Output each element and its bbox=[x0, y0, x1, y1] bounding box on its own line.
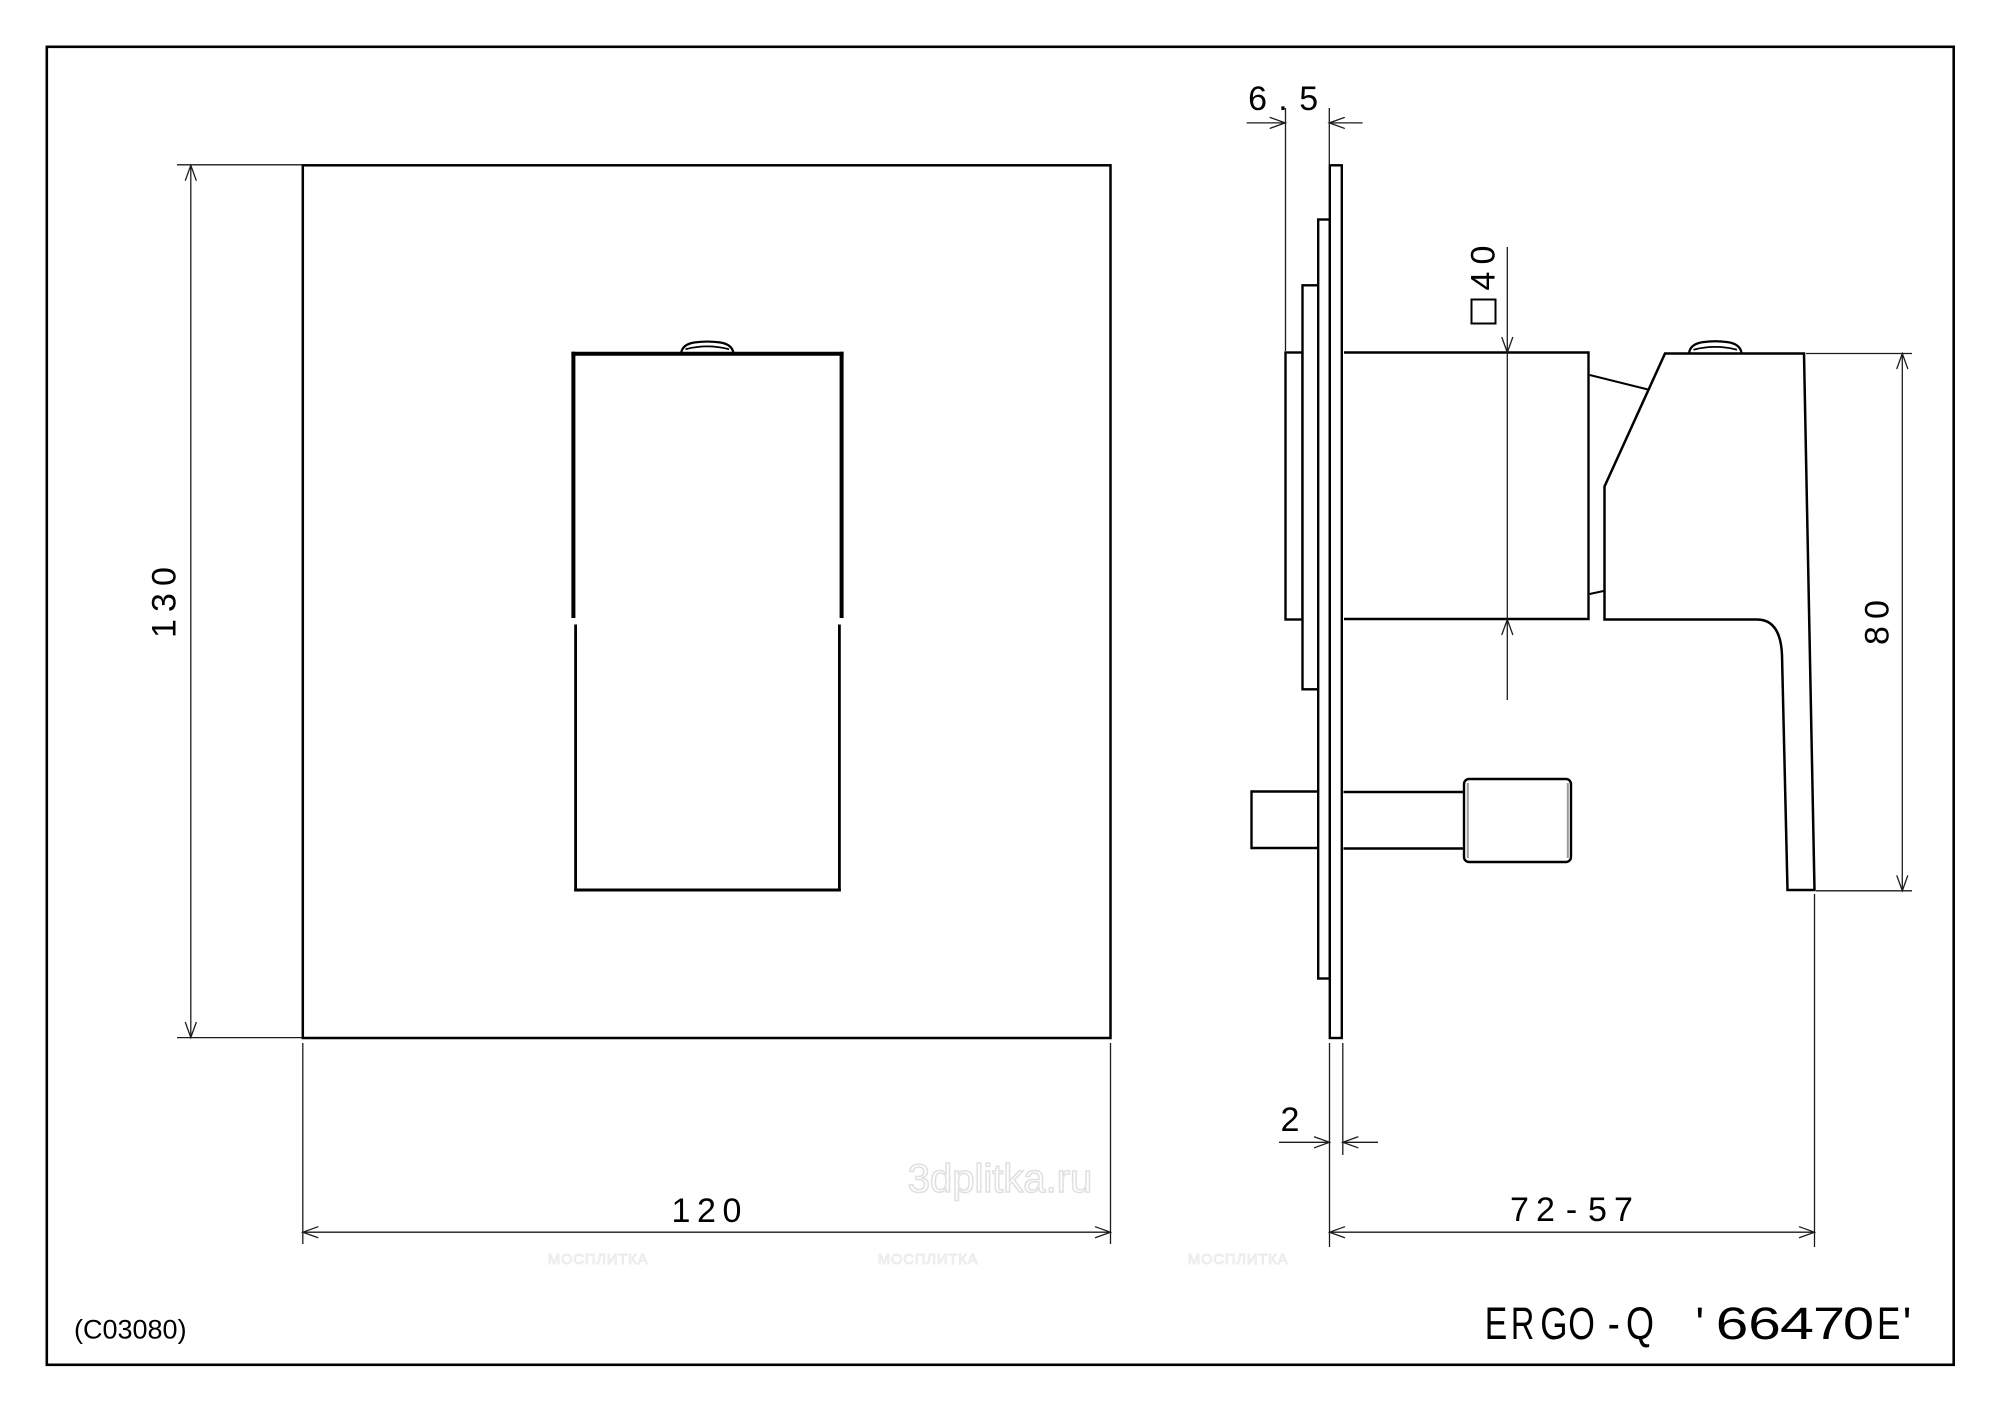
svg-text:6: 6 bbox=[1248, 80, 1267, 118]
svg-text:': ' bbox=[1903, 1298, 1912, 1349]
svg-text:E: E bbox=[1877, 1298, 1900, 1349]
svg-text:8: 8 bbox=[1859, 626, 1897, 645]
svg-text:6: 6 bbox=[1716, 1299, 1749, 1349]
svg-text:0: 0 bbox=[146, 567, 184, 586]
svg-text:0: 0 bbox=[1859, 600, 1897, 619]
svg-text:7: 7 bbox=[1510, 1191, 1529, 1229]
svg-text:': ' bbox=[1696, 1298, 1705, 1349]
svg-text:МОСПЛИТКА: МОСПЛИТКА bbox=[878, 1251, 979, 1268]
svg-text:3: 3 bbox=[146, 593, 184, 612]
svg-text:.: . bbox=[1278, 80, 1287, 118]
svg-text:O: O bbox=[1568, 1300, 1595, 1350]
svg-text:3dplitka.ru: 3dplitka.ru bbox=[908, 1157, 1093, 1201]
svg-text:5: 5 bbox=[1588, 1191, 1607, 1229]
svg-text:1: 1 bbox=[146, 619, 184, 638]
svg-text:0: 0 bbox=[723, 1192, 742, 1230]
svg-text:-: - bbox=[1608, 1298, 1620, 1349]
svg-text:G: G bbox=[1540, 1298, 1567, 1349]
svg-text:7: 7 bbox=[1813, 1298, 1845, 1348]
svg-text:R: R bbox=[1511, 1300, 1534, 1349]
svg-text:МОСПЛИТКА: МОСПЛИТКА bbox=[1188, 1251, 1289, 1268]
svg-text:2: 2 bbox=[1536, 1191, 1555, 1229]
svg-text:1: 1 bbox=[672, 1192, 691, 1230]
svg-text:МОСПЛИТКА: МОСПЛИТКА bbox=[548, 1251, 649, 1268]
svg-text:0: 0 bbox=[1843, 1298, 1874, 1349]
svg-text:5: 5 bbox=[1299, 80, 1318, 118]
svg-text:2: 2 bbox=[697, 1192, 716, 1230]
svg-text:4: 4 bbox=[1465, 272, 1503, 291]
svg-text:Q: Q bbox=[1626, 1298, 1654, 1349]
svg-text:7: 7 bbox=[1614, 1191, 1633, 1229]
svg-text:6: 6 bbox=[1748, 1299, 1781, 1349]
svg-text:-: - bbox=[1566, 1191, 1577, 1229]
svg-text:4: 4 bbox=[1780, 1299, 1814, 1349]
svg-text:2: 2 bbox=[1281, 1101, 1300, 1139]
svg-text:(C03080): (C03080) bbox=[74, 1315, 187, 1345]
svg-text:0: 0 bbox=[1465, 246, 1503, 265]
svg-text:E: E bbox=[1485, 1299, 1508, 1349]
